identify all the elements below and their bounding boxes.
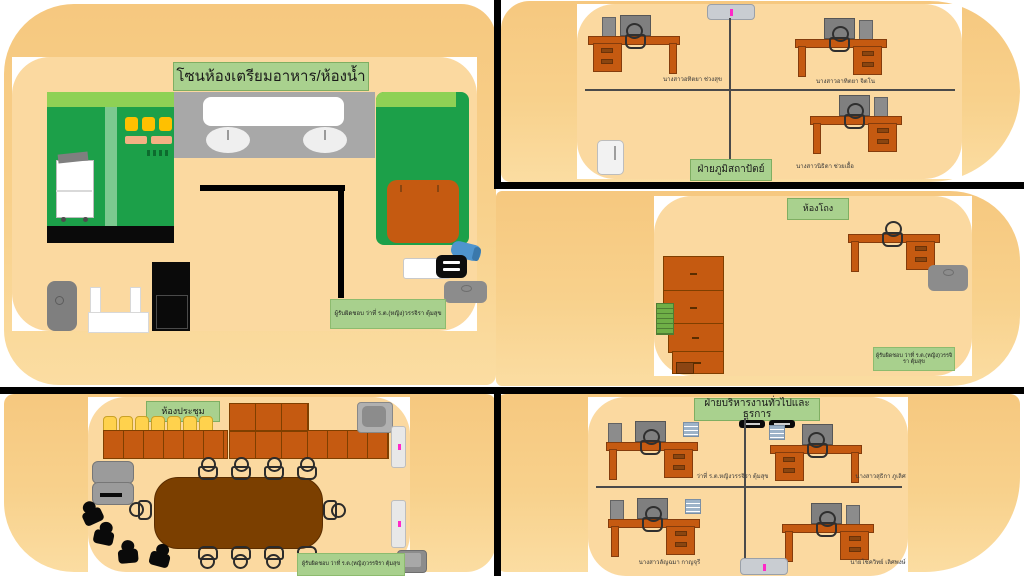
meeting-chair-icon (198, 457, 218, 481)
floor-plan: โซนห้องเตรียมอาหาร/ห้องน้ำ ผู้รับผิดชอบ … (0, 0, 1024, 576)
landscape-dept-label: ฝ่ายภูมิสถาปัตย์ (690, 159, 772, 181)
food-zone-title: โซนห้องเตรียมอาหาร/ห้องน้ำ (173, 62, 369, 91)
office-chair-icon (828, 26, 852, 54)
mini-fridge-icon (597, 140, 624, 175)
staff-name: นางสาวสุธิกา ภูเลิศ (838, 474, 923, 480)
kitchen-cabinet-top (47, 92, 174, 107)
office-desk (782, 500, 874, 562)
desk-drawers (853, 46, 882, 75)
kitchen-cabinet-stripe (105, 107, 117, 226)
document-tray-icon (685, 499, 701, 514)
desk-drawers (593, 43, 622, 72)
yellow-chair-icon (119, 416, 133, 431)
sink-drain-line (227, 130, 229, 140)
meeting-chair-icon (231, 457, 251, 481)
cabinet (663, 256, 724, 292)
desk-drawers (666, 526, 695, 555)
staff-name: นายโชควิทย์ เลิศพงษ์ (828, 560, 928, 566)
office-chair-icon (805, 432, 829, 460)
gray-cabinet-handle (100, 493, 122, 497)
step-stool (676, 362, 694, 374)
bathtub (387, 180, 459, 243)
office-desk (608, 495, 700, 557)
door-knob (55, 296, 64, 305)
locker-row (103, 430, 228, 459)
desk-leg (785, 531, 793, 562)
stacked-yellow-chairs (103, 416, 227, 430)
yellow-chair-icon (151, 416, 165, 431)
printer-slot (443, 261, 460, 264)
bathtub-mark (437, 185, 439, 192)
office-chair-icon (623, 23, 647, 51)
bathtub-mark (400, 185, 402, 192)
staff-name: นางสาวนิธิดา ช่วยเอื้อ (775, 164, 875, 170)
gray-cabinet (92, 461, 134, 484)
desk-leg (669, 43, 677, 74)
doormat-handle (461, 285, 472, 292)
office-desk (848, 210, 940, 272)
zone-divider (585, 89, 955, 91)
interior-wall (200, 185, 345, 191)
desk-leg (609, 449, 617, 480)
staff-name: นางสาวลัญฉมา กาญจุรี (612, 560, 727, 566)
bathroom-top-strip (376, 92, 456, 107)
meeting-chair-icon (322, 500, 346, 520)
yellow-chair-icon (135, 416, 149, 431)
vent-slits (147, 150, 169, 156)
sink-basin (362, 406, 386, 427)
air-conditioner-icon (740, 558, 788, 575)
mini-fridge-handle (614, 146, 616, 160)
office-desk (810, 92, 902, 154)
office-desk (606, 418, 698, 480)
copier-icon (56, 160, 94, 218)
office-chair-icon (881, 221, 905, 249)
stacked-black-chair-icon (117, 539, 143, 569)
air-conditioner-icon (707, 4, 755, 20)
stove-knob (159, 117, 172, 131)
yellow-chair-icon (103, 416, 117, 431)
zone-divider (729, 18, 731, 170)
food-responsible-label: ผู้รับผิดชอบ ว่าที่ ร.ต.(หญิง)วรรจิรา ตุ… (330, 299, 446, 329)
stove-panel (151, 136, 172, 144)
printer-slot (443, 268, 460, 271)
zone-divider (596, 486, 902, 488)
desk-drawers (840, 531, 869, 560)
door-strip (391, 426, 406, 468)
office-chair-icon (815, 511, 839, 539)
locker-row (307, 430, 389, 459)
desk-leg (851, 241, 859, 272)
office-chair-icon (639, 429, 663, 457)
office-desk (795, 15, 887, 77)
countertop (203, 97, 344, 126)
stove-knob (142, 117, 155, 131)
meeting-chair-icon (198, 545, 218, 569)
office-chair-icon (843, 103, 867, 131)
meeting-chair-icon (264, 457, 284, 481)
yellow-chair-icon (183, 416, 197, 431)
meeting-chair-icon (297, 457, 317, 481)
document-tray-icon (769, 425, 785, 440)
wall-vertical-bottom (494, 394, 501, 576)
desk-leg (813, 123, 821, 154)
yellow-chair-icon (199, 416, 213, 431)
wall-horizontal-upper (494, 182, 1024, 189)
office-desk (588, 12, 680, 74)
meeting-chair-icon (231, 545, 251, 569)
bench-handle (943, 269, 954, 276)
copier-shelf-line (56, 190, 92, 192)
desk-leg (611, 526, 619, 557)
desk-leg (798, 46, 806, 77)
hall-title: ห้องโถง (787, 198, 849, 220)
cabinet (668, 323, 724, 353)
stove-panel (125, 136, 147, 144)
hall-responsible-label: ผู้รับผิดชอบ ว่าที่ ร.ต.(หญิง)วรรจิรา ตุ… (873, 347, 955, 371)
staff-name: ว่าที่ ร.ต.หญิงวรรจิรา ตุ้มสุข (675, 474, 790, 480)
yellow-chair-icon (167, 416, 181, 431)
admin-title: ฝ่ายบริหารงานทั่วไปและธุรการ (694, 398, 820, 421)
copier-wheel (83, 217, 88, 222)
white-bench (88, 312, 149, 333)
interior-wall (338, 185, 344, 298)
document-tray-icon (683, 422, 699, 437)
nameplate (739, 420, 765, 428)
door-panel (47, 281, 77, 331)
conference-table (154, 477, 323, 549)
door-strip (391, 500, 406, 548)
meeting-chair-icon (264, 545, 284, 569)
desk-drawers (868, 123, 897, 152)
meeting-chair-icon (129, 500, 153, 520)
sink-drain-line (324, 130, 326, 140)
meeting-responsible-label: ผู้รับผิดชอบ ว่าที่ ร.ต.(หญิง)วรรจิรา ตุ… (297, 553, 405, 576)
kitchen-base (47, 226, 174, 243)
staff-name: นางสาวอทิตยา ช่วงสุข (645, 77, 740, 83)
office-chair-icon (641, 506, 665, 534)
black-wardrobe-door (156, 295, 188, 329)
wall-vertical-top (494, 0, 501, 188)
zone-divider (744, 418, 746, 560)
wall-horizontal-lower (0, 387, 1024, 394)
stove-knob (125, 117, 138, 131)
green-shelf (656, 303, 674, 335)
cabinet-block (229, 403, 309, 459)
printer-icon (436, 255, 467, 278)
staff-name: นางสาวอาทิตยา จิตโน (798, 79, 893, 85)
copier-wheel (61, 217, 66, 222)
